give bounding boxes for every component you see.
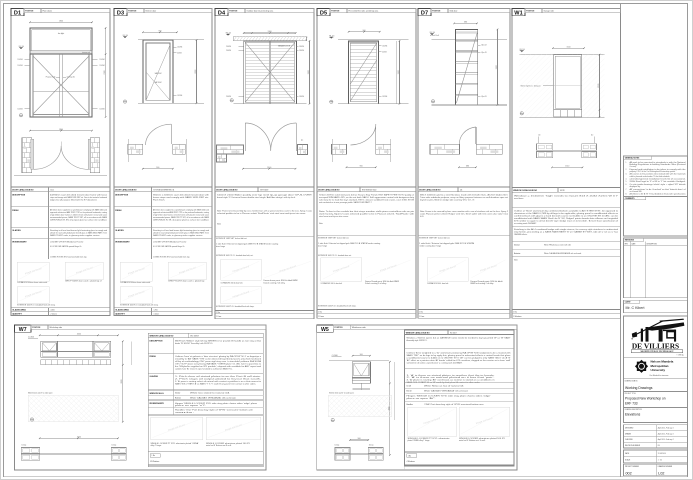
svg-text:render coating door hinge: render coating door hinge bbox=[419, 245, 441, 248]
svg-text:Mr. C Kibert: Mr. C Kibert bbox=[626, 306, 645, 310]
svg-text:Grid door: Grid door bbox=[450, 10, 458, 13]
svg-text:FFL 100: FFL 100 bbox=[329, 35, 334, 37]
svg-text:110X94: 110X94 bbox=[299, 46, 304, 48]
svg-text:1 No: 1 No bbox=[513, 312, 517, 314]
svg-text:2100: 2100 bbox=[308, 70, 310, 74]
svg-text:110X94: 110X94 bbox=[382, 96, 387, 98]
svg-text:POSITION: POSITION bbox=[331, 11, 340, 13]
svg-text:Assembly style 99X2FYO.: Assembly style 99X2FYO. bbox=[407, 339, 428, 342]
svg-text:Ext sill: Ext sill bbox=[407, 390, 413, 393]
svg-text:REVISIONS: REVISIONS bbox=[625, 240, 635, 242]
svg-text:Exterior: Exterior bbox=[175, 396, 181, 399]
svg-text:University: University bbox=[651, 368, 666, 372]
svg-text:1800: 1800 bbox=[59, 129, 63, 131]
svg-text:re-coating work 410/SABY.: re-coating work 410/SABY. bbox=[514, 222, 537, 225]
svg-text:110X94: 110X94 bbox=[299, 50, 304, 52]
svg-text:Note: Note bbox=[217, 223, 221, 226]
svg-text:door hinge: door hinge bbox=[216, 245, 225, 248]
svg-text:PROJECT TITLE: PROJECT TITLE bbox=[625, 393, 636, 395]
svg-text:GLAZING: GLAZING bbox=[115, 229, 124, 232]
svg-text:DESCRIPTION: DESCRIPTION bbox=[647, 244, 657, 246]
svg-text:FINISH: FINISH bbox=[12, 210, 19, 212]
svg-text:White 'DALMA K VERDANZA' sills: White 'DALMA K VERDANZA' sills as broad. bbox=[190, 396, 237, 399]
svg-text:110X94: 110X94 bbox=[99, 109, 104, 111]
svg-text:POSITION: POSITION bbox=[526, 11, 535, 13]
svg-text:Kitchen door: Kitchen door bbox=[146, 10, 157, 13]
svg-text:110X94: 110X94 bbox=[18, 109, 23, 111]
svg-text:44X94: 44X94 bbox=[382, 51, 387, 53]
svg-text:displayed' by.: displayed' by. bbox=[630, 186, 642, 188]
svg-text:WINDOW CATALOGUE NO: WINDOW CATALOGUE NO bbox=[513, 189, 537, 192]
svg-text:dpc: dpc bbox=[301, 140, 304, 142]
svg-text:110X94: 110X94 bbox=[226, 50, 231, 52]
svg-text:2100: 2100 bbox=[104, 71, 106, 75]
svg-text:keyed no pins, filled tie wedg: keyed no pins, filled tie wedge side cou… bbox=[420, 199, 475, 202]
svg-text:1510: 1510 bbox=[567, 46, 571, 48]
svg-text:2 Doors: 2 Doors bbox=[51, 314, 57, 316]
svg-text:REVISION NUMBER: REVISION NUMBER bbox=[625, 445, 641, 447]
svg-text:900: 900 bbox=[156, 167, 159, 169]
svg-text:COMM. HOOKS 871 hand washable: COMM. HOOKS 871 hand washable lock top. bbox=[153, 256, 190, 259]
svg-text:4 Windows: 4 Windows bbox=[407, 461, 415, 463]
svg-text:GLAZED AREA: GLAZED AREA bbox=[12, 309, 26, 312]
svg-text:Outdoor door w/ protecting are: Outdoor door w/ protecting area bbox=[247, 10, 275, 13]
svg-text:110 dpc: 110 dpc bbox=[22, 444, 27, 446]
svg-text:candid chute 'BL' mixed in spe: candid chute 'BL' mixed in spec fundated… bbox=[175, 368, 233, 371]
svg-text:GLAZING: GLAZING bbox=[12, 229, 21, 232]
svg-text:QUANTITY: QUANTITY bbox=[12, 313, 22, 316]
svg-text:110X94: 110X94 bbox=[99, 59, 104, 61]
svg-text:D01: D01 bbox=[51, 189, 54, 191]
svg-text:1 No: 1 No bbox=[408, 456, 411, 458]
svg-text:D7: D7 bbox=[421, 10, 428, 16]
svg-text:GLAZED AREA: GLAZED AREA bbox=[115, 309, 129, 312]
svg-text:L02: L02 bbox=[332, 420, 334, 422]
svg-text:Flush finish.: Flush finish. bbox=[153, 199, 166, 201]
svg-text:Whitehouse side: Whitehouse side bbox=[352, 326, 366, 329]
svg-text:POSITION: POSITION bbox=[432, 11, 441, 13]
svg-text:White two stated to natural s: White two stated to natural still. bbox=[190, 392, 231, 395]
svg-text:2 Doors: 2 Doors bbox=[318, 315, 324, 318]
svg-text:SANS 710097 code, in glossary: SANS 710097 code, in glossary aisles sup… bbox=[50, 234, 100, 237]
svg-text:IRONMONGERY: IRONMONGERY bbox=[12, 242, 27, 244]
svg-text:EXTERIOR 'GRIP SET' lockset bo: EXTERIOR 'GRIP SET' lockset bolt set. bbox=[216, 237, 247, 240]
svg-text:900: 900 bbox=[360, 354, 363, 356]
svg-text:4000: 4000 bbox=[77, 334, 81, 336]
svg-text:2100: 2100 bbox=[598, 84, 600, 88]
svg-text:FINISH: FINISH bbox=[150, 356, 157, 358]
svg-text:door hinge: door hinge bbox=[318, 245, 327, 248]
svg-text:686: 686 bbox=[466, 165, 469, 167]
svg-text:110X94: 110X94 bbox=[226, 96, 231, 98]
svg-text:COMMENTS: COMMENTS bbox=[625, 198, 636, 200]
svg-text:Wps 6X: Wps 6X bbox=[481, 96, 486, 98]
svg-text:EXT/SINGLE/SHEETED 34: EXT/SINGLE/SHEETED 34 bbox=[154, 189, 175, 191]
svg-text:LOCKSET UPR 8YR 88L Anchor Pr: LOCKSET UPR 8YR 88L Anchor Prant 62 bbox=[50, 240, 83, 243]
svg-text:EXTERIOR 100X 75 O.I. bandrail: EXTERIOR 100X 75 O.I. bandrail door bolt… bbox=[216, 254, 254, 257]
svg-text:FINISH: FINISH bbox=[115, 210, 122, 212]
svg-text:L02: L02 bbox=[20, 116, 22, 118]
svg-text:CARBSB effects.: CARBSB effects. bbox=[514, 233, 528, 236]
svg-text:WINDOW CATALOGUE NO: WINDOW CATALOGUE NO bbox=[406, 331, 430, 334]
svg-text:D5: D5 bbox=[320, 10, 327, 16]
svg-text:alloy T hinge.: alloy T hinge. bbox=[151, 445, 163, 447]
svg-text:SANS 710097 code, in glossary: SANS 710097 code, in glossary aisles sup… bbox=[153, 234, 203, 237]
svg-text:110 dpc: 110 dpc bbox=[335, 444, 340, 446]
svg-text:110X94: 110X94 bbox=[226, 46, 231, 48]
svg-text:Working Drawings: Working Drawings bbox=[625, 386, 653, 390]
svg-text:L02: L02 bbox=[31, 420, 33, 422]
svg-text:DOOR CATALOGUE NO: DOOR CATALOGUE NO bbox=[12, 188, 34, 191]
svg-text:exit escalated as to one passa: exit escalated as to one passage yields.… bbox=[319, 201, 373, 204]
svg-text:SABS 'SOLO' PART 'A' as SANS ': SABS 'SOLO' PART 'A' as SANS 'Y' X 'Y' s… bbox=[175, 382, 257, 385]
svg-text:Note: Note bbox=[514, 259, 518, 262]
svg-text:1 No: 1 No bbox=[318, 312, 322, 314]
svg-text:EXT/SINGLE 34D: EXT/SINGLE 34D bbox=[362, 189, 377, 191]
svg-text:WINDOW CATALOGUE NO: WINDOW CATALOGUE NO bbox=[150, 335, 174, 338]
svg-text:step formin, proceeding as a S: step formin, proceeding as a SABS 'MAIN … bbox=[514, 231, 618, 234]
svg-text:place as open 'AY'.: place as open 'AY'. bbox=[407, 397, 437, 400]
svg-text:L02: L02 bbox=[231, 101, 233, 103]
svg-text:110 dpc: 110 dpc bbox=[112, 444, 117, 446]
svg-text:DOOR CATALOGUE NO: DOOR CATALOGUE NO bbox=[318, 188, 340, 191]
svg-text:D4: D4 bbox=[218, 10, 226, 16]
svg-text:W1: W1 bbox=[514, 10, 522, 16]
svg-text:Wps 6X: Wps 6X bbox=[481, 45, 486, 47]
svg-text:FFL 100: FFL 100 bbox=[520, 49, 525, 51]
svg-text:IRONMONGERY: IRONMONGERY bbox=[115, 242, 130, 244]
svg-text:2600: 2600 bbox=[121, 380, 123, 384]
svg-text:110X94: 110X94 bbox=[18, 65, 23, 67]
svg-text:1800: 1800 bbox=[59, 21, 63, 23]
svg-text:900: 900 bbox=[363, 30, 366, 32]
svg-text:850mm high fix 1 x 1100 pane: 850mm high fix 1 x 1100 pane bbox=[521, 85, 541, 87]
svg-text:Elevations: Elevations bbox=[625, 413, 641, 417]
svg-text:W7: W7 bbox=[19, 327, 27, 333]
svg-text:Fire exit/all fire side, works: Fire exit/all fire side, workshop area bbox=[349, 10, 380, 13]
svg-text:110X94: 110X94 bbox=[177, 47, 182, 49]
svg-text:fan light: fan light bbox=[58, 32, 65, 35]
svg-text:EXTERIOR 'GRIP SET' lockset bo: EXTERIOR 'GRIP SET' lockset bolt set. bbox=[419, 236, 450, 239]
svg-text:Handles: Handles bbox=[407, 404, 413, 406]
svg-text:FFL 100: FFL 100 bbox=[226, 32, 231, 34]
svg-text:Plain doors: Plain doors bbox=[43, 10, 53, 13]
svg-text:5100: 5100 bbox=[268, 31, 272, 33]
svg-text:2100: 2100 bbox=[398, 70, 400, 74]
svg-text:White PELA stucco natte with: White PELA stucco natte with still. bbox=[544, 244, 572, 247]
svg-text:White 'DALMA K VERDANZA' sill: White 'DALMA K VERDANZA' sill as broad. bbox=[424, 390, 469, 393]
svg-text:CLIENT: CLIENT bbox=[625, 302, 631, 304]
svg-text:POSITION: POSITION bbox=[128, 11, 137, 13]
svg-text:Note: Frame to be braced fully: Note: Frame to be braced fully by cross … bbox=[217, 210, 312, 213]
svg-text:1 Door: 1 Door bbox=[216, 315, 222, 318]
svg-text:2100: 2100 bbox=[496, 65, 498, 69]
svg-text:1 side flush / Exterior hot di: 1 side flush / Exterior hot dipped galv … bbox=[216, 243, 278, 246]
svg-text:Proposed New Workshop on: Proposed New Workshop on bbox=[625, 397, 666, 401]
svg-text:edges but all purpose fitted w: edges but all purpose fitted with the E7… bbox=[50, 198, 98, 201]
svg-text:D4: D4 bbox=[460, 189, 462, 191]
svg-text:W Windows: W Windows bbox=[150, 461, 159, 463]
svg-text:44X94: 44X94 bbox=[177, 52, 182, 54]
svg-text:POSITION: POSITION bbox=[32, 327, 41, 329]
svg-text:GLAZING: GLAZING bbox=[150, 375, 159, 378]
svg-text:Int sill: Int sill bbox=[407, 384, 412, 387]
svg-text:110X94: 110X94 bbox=[382, 45, 387, 47]
svg-text:900: 900 bbox=[360, 165, 363, 167]
svg-text:Note: Note bbox=[319, 222, 323, 225]
svg-text:IRONMONGERY: IRONMONGERY bbox=[150, 403, 165, 405]
svg-text:GTR 3469: GTR 3469 bbox=[260, 189, 268, 191]
svg-text:DOOR CATALOGUE NO: DOOR CATALOGUE NO bbox=[216, 188, 238, 191]
svg-text:DESCRIPTION: DESCRIPTION bbox=[150, 341, 164, 343]
svg-text:place as open 'a'Y.: place as open 'a'Y. bbox=[175, 405, 207, 407]
svg-text:POSITION: POSITION bbox=[229, 11, 238, 13]
svg-text:DE VILLIERS: DE VILLIERS bbox=[632, 342, 679, 351]
svg-text:L02: L02 bbox=[124, 102, 126, 104]
svg-text:L02: L02 bbox=[432, 102, 434, 104]
svg-text:1.9m²: 1.9m² bbox=[154, 309, 159, 312]
svg-text:mend brace.: mend brace. bbox=[514, 198, 524, 200]
svg-text:1 Door: 1 Door bbox=[419, 315, 425, 318]
svg-text:FFL 100: FFL 100 bbox=[430, 32, 435, 34]
svg-text:DESIGNED: DESIGNED bbox=[625, 428, 634, 430]
svg-text:GENERAL NOTES: GENERAL NOTES bbox=[625, 157, 640, 160]
svg-text:110 dpc: 110 dpc bbox=[369, 444, 374, 446]
svg-text:110X94: 110X94 bbox=[177, 95, 182, 97]
svg-text:FFL 100: FFL 100 bbox=[19, 46, 24, 48]
svg-text:EXTERIOR 100X 75 O.I. bandrail: EXTERIOR 100X 75 O.I. bandrail door set. bbox=[318, 254, 352, 257]
svg-text:L02: L02 bbox=[330, 102, 332, 104]
svg-text:6 LOCKS LMR GAPWE upward Hing: 6 LOCKS LMR GAPWE upward Hinge Zn bbox=[153, 245, 184, 248]
svg-text:Workshop side: Workshop side bbox=[50, 326, 62, 329]
svg-text:COMM. HOOKS 871 hand washable: COMM. HOOKS 871 hand washable lock top. bbox=[50, 256, 87, 259]
svg-text:Exterior:: Exterior: bbox=[514, 252, 521, 255]
svg-text:ARCHITECTURAL TECHNOLOGY: ARCHITECTURAL TECHNOLOGY bbox=[640, 350, 674, 353]
svg-text:DOOR CATALOGUE NO: DOOR CATALOGUE NO bbox=[115, 188, 137, 191]
svg-text:WINDOW SILLS: WINDOW SILLS bbox=[150, 393, 165, 395]
svg-text:Interior:: Interior: bbox=[514, 244, 521, 247]
svg-text:900: 900 bbox=[358, 438, 361, 440]
svg-text:FFL 100: FFL 100 bbox=[123, 35, 128, 37]
svg-text:1099X7586-81 W. SR, all purpos: 1099X7586-81 W. SR, all purpose glued as… bbox=[153, 219, 209, 222]
svg-text:W1 18X09: W1 18X09 bbox=[190, 336, 198, 338]
svg-text:31 08 2010: 31 08 2010 bbox=[658, 453, 666, 455]
svg-text:Garage side: Garage side bbox=[544, 10, 554, 13]
svg-text:Interior: Interior bbox=[175, 392, 181, 395]
svg-text:6 LOCKS LMR GAPWE upward Hing: 6 LOCKS LMR GAPWE upward Hinge Zn bbox=[50, 245, 81, 248]
svg-text:brand style 'D' Universal fram: brand style 'D' Universal frame double s… bbox=[217, 196, 296, 199]
svg-text:Window = 1510mm 'high' needs t: Window = 1510mm 'high' needs to mount 81… bbox=[514, 194, 620, 197]
svg-text:110X94: 110X94 bbox=[99, 65, 104, 67]
svg-text:1099X7586-81 W. SR, all purpos: 1099X7586-81 W. SR, all purpose glued as… bbox=[50, 219, 107, 222]
svg-text:R0: R0 bbox=[658, 445, 660, 447]
svg-text:686: 686 bbox=[464, 22, 467, 24]
svg-text:1 side flush / Exterior hot di: 1 side flush / Exterior hot dipped galv … bbox=[318, 242, 380, 245]
svg-text:QUANTITY: QUANTITY bbox=[115, 313, 125, 316]
svg-text:Wps 4X: Wps 4X bbox=[481, 52, 486, 54]
svg-text:L02: L02 bbox=[521, 114, 523, 116]
svg-text:2 Windows: 2 Windows bbox=[513, 316, 521, 318]
svg-text:POSITION: POSITION bbox=[25, 11, 34, 13]
svg-text:selected qualifier to be in Pl: selected qualifier to be in Plascon velv… bbox=[217, 212, 306, 215]
svg-text:4.3m²: 4.3m² bbox=[51, 309, 56, 312]
svg-text:0.05: 0.05 bbox=[420, 216, 424, 218]
svg-text:CHECKED: CHECKED bbox=[625, 439, 634, 441]
svg-text:sorts.: sorts. bbox=[175, 411, 197, 414]
svg-text:ERF 733: ERF 733 bbox=[625, 402, 638, 406]
svg-text:W. 0607: W. 0607 bbox=[450, 332, 457, 334]
svg-text:White Relax as two of natural: White Relax as two of natural sill. bbox=[424, 384, 465, 387]
svg-text:110: 110 bbox=[538, 135, 540, 137]
svg-text:5100: 5100 bbox=[267, 167, 271, 169]
svg-text:1 : 50: 1 : 50 bbox=[658, 460, 662, 462]
svg-text:1 Door: 1 Door bbox=[154, 314, 160, 316]
svg-text:4000: 4000 bbox=[77, 437, 81, 439]
svg-text:EXTERIOR 'GRIP SET' lockset bo: EXTERIOR 'GRIP SET' lockset bolt set. bbox=[318, 236, 349, 239]
svg-text:900: 900 bbox=[159, 30, 162, 32]
svg-text:D1: D1 bbox=[14, 10, 21, 16]
svg-text:L02: L02 bbox=[658, 471, 664, 475]
svg-text:binder 'W' 30X24Y 'SevenBay' w: binder 'W' 30X24Y 'SevenBay' with 99X2FY… bbox=[175, 342, 213, 345]
svg-text:2032: 2032 bbox=[195, 70, 197, 74]
svg-text:W5: W5 bbox=[321, 327, 329, 333]
svg-text:002: 002 bbox=[626, 471, 632, 475]
svg-text:110: 110 bbox=[591, 135, 593, 137]
svg-text:REV: REV bbox=[625, 244, 628, 246]
svg-text:110X94: 110X94 bbox=[18, 59, 23, 61]
svg-text:DOOR CATALOGUE NO: DOOR CATALOGUE NO bbox=[419, 188, 441, 191]
svg-text:DESCRIPTION: DESCRIPTION bbox=[12, 195, 26, 197]
svg-text:'ONE' Port draw bay style of ': 'ONE' Port draw bay style of 'WYN' overs… bbox=[424, 403, 485, 406]
svg-text:PROJECT NUMBER: PROJECT NUMBER bbox=[625, 466, 640, 468]
svg-text:POSITION: POSITION bbox=[334, 327, 343, 329]
svg-text:D3: D3 bbox=[117, 10, 124, 16]
svg-text:White 'DALMA KSA VERDANZA' oil: White 'DALMA KSA VERDANZA' oils as broad… bbox=[544, 252, 582, 255]
svg-text:steel semi and tip-on trim cov: steel semi and tip-on trim cover. bbox=[319, 215, 349, 218]
svg-text:1510: 1510 bbox=[565, 166, 569, 168]
svg-text:1 No: 1 No bbox=[152, 455, 155, 457]
svg-text:110X94: 110X94 bbox=[299, 96, 304, 98]
svg-text:5100 X 2100 Slider quality ove: 5100 X 2100 Slider quality over lap stee… bbox=[217, 194, 313, 197]
svg-text:LOCKSET UPR 8YR 88L Anchor Pr: LOCKSET UPR 8YR 88L Anchor Prant 62 bbox=[153, 240, 186, 243]
svg-text:somewhere all codes a specific: somewhere all codes a specification 'a',… bbox=[407, 361, 463, 364]
svg-text:1 No: 1 No bbox=[419, 312, 423, 314]
svg-text:DESCRIPTION: DESCRIPTION bbox=[115, 195, 129, 197]
svg-text:coats Plascon primer velvett ': coats Plascon primer velvett 'Ralpor' zi… bbox=[420, 212, 509, 215]
